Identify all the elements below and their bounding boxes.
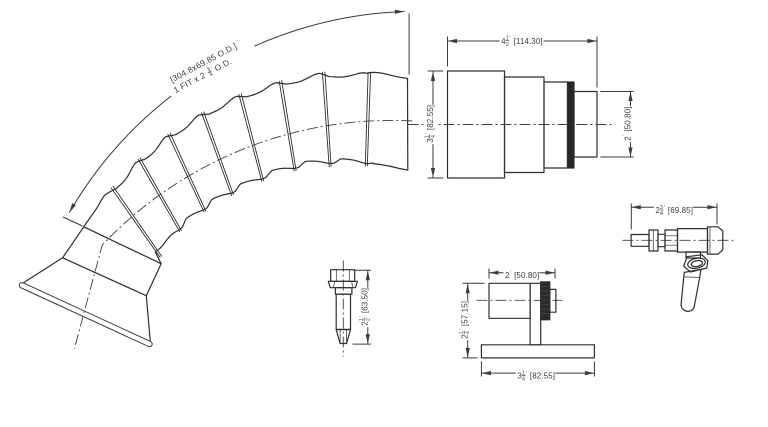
svg-text:': ' <box>460 329 466 330</box>
svg-text:': ' <box>664 206 665 212</box>
svg-text:4: 4 <box>431 135 437 138</box>
svg-text:[114.30]: [114.30] <box>514 37 543 46</box>
svg-text:[50.80]: [50.80] <box>623 106 632 131</box>
svg-text:4: 4 <box>660 211 663 217</box>
svg-text:': ' <box>510 271 511 277</box>
svg-text:[63.50]: [63.50] <box>360 288 369 313</box>
svg-text:[50.80]: [50.80] <box>514 271 539 280</box>
svg-text:[57.15]: [57.15] <box>460 301 469 326</box>
svg-text:2: 2 <box>506 42 509 48</box>
svg-text:[82.55]: [82.55] <box>426 105 435 130</box>
svg-text:[69.85]: [69.85] <box>668 206 693 215</box>
svg-text:': ' <box>425 133 431 134</box>
svg-text:2: 2 <box>365 318 371 321</box>
svg-text:': ' <box>526 371 527 377</box>
svg-text:[82.55]: [82.55] <box>530 372 555 381</box>
svg-text:4: 4 <box>522 377 525 383</box>
svg-text:': ' <box>510 36 511 42</box>
svg-text:': ' <box>360 316 366 317</box>
svg-text:4: 4 <box>465 331 471 334</box>
svg-text:': ' <box>623 135 629 136</box>
